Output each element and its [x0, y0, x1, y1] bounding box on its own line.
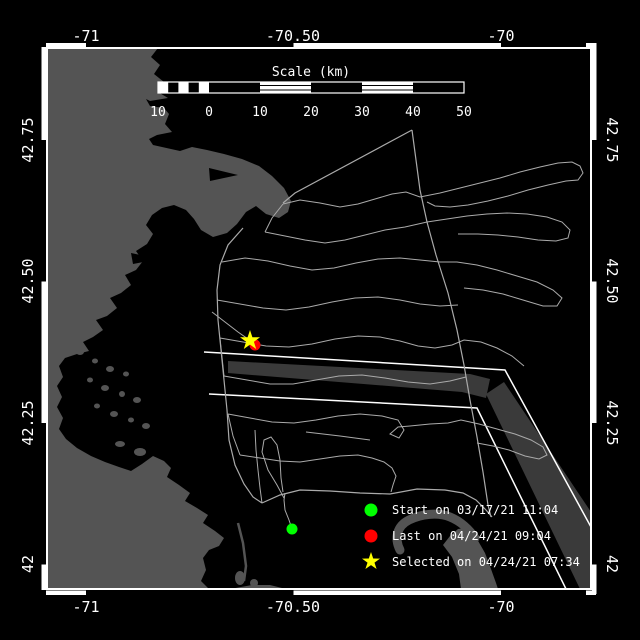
lat-tick-label-right: 42.50 — [603, 258, 621, 303]
scale-tick-label: 50 — [456, 105, 472, 120]
legend-selected-label: Selected on 04/24/21 07:34 — [392, 555, 580, 569]
scale-tick-label: 0 — [205, 105, 213, 120]
plymouth-island — [250, 579, 258, 587]
scale-tick-label: 40 — [405, 105, 421, 120]
duxbury-island — [235, 571, 245, 585]
scale-tick-label: 30 — [354, 105, 370, 120]
lat-tick-label-right: 42.75 — [603, 117, 621, 162]
lat-tick-label-left: 42.75 — [19, 117, 37, 162]
lat-tick-label-left: 42.50 — [19, 258, 37, 303]
map-svg: Scale (km) 10 0 10 20 30 40 50 Start on … — [0, 0, 640, 640]
lon-tick-label-top: -70 — [487, 27, 514, 45]
scale-tick-label: 10 — [252, 105, 268, 120]
lat-tick-label-right: 42 — [603, 555, 621, 573]
start-marker — [287, 524, 298, 535]
legend-last-marker — [365, 530, 378, 543]
legend-start-marker — [365, 504, 378, 517]
lon-tick-label-top: -70.50 — [266, 27, 320, 45]
legend-start-label: Start on 03/17/21 11:04 — [392, 503, 558, 517]
map-figure: Scale (km) 10 0 10 20 30 40 50 Start on … — [0, 0, 640, 640]
lon-tick-label-bottom: -70.50 — [266, 598, 320, 616]
lon-tick-label-top: -71 — [72, 27, 99, 45]
legend-last-label: Last on 04/24/21 09:04 — [392, 529, 551, 543]
scale-bar-title: Scale (km) — [272, 65, 350, 80]
lat-tick-label-left: 42 — [19, 555, 37, 573]
legend: Start on 03/17/21 11:04 Last on 04/24/21… — [362, 503, 580, 569]
lat-tick-label-right: 42.25 — [603, 400, 621, 445]
lat-tick-label-left: 42.25 — [19, 400, 37, 445]
scale-tick-label: 10 — [150, 105, 166, 120]
lon-tick-label-bottom: -71 — [72, 598, 99, 616]
scale-tick-label: 20 — [303, 105, 319, 120]
lon-tick-label-bottom: -70 — [487, 598, 514, 616]
